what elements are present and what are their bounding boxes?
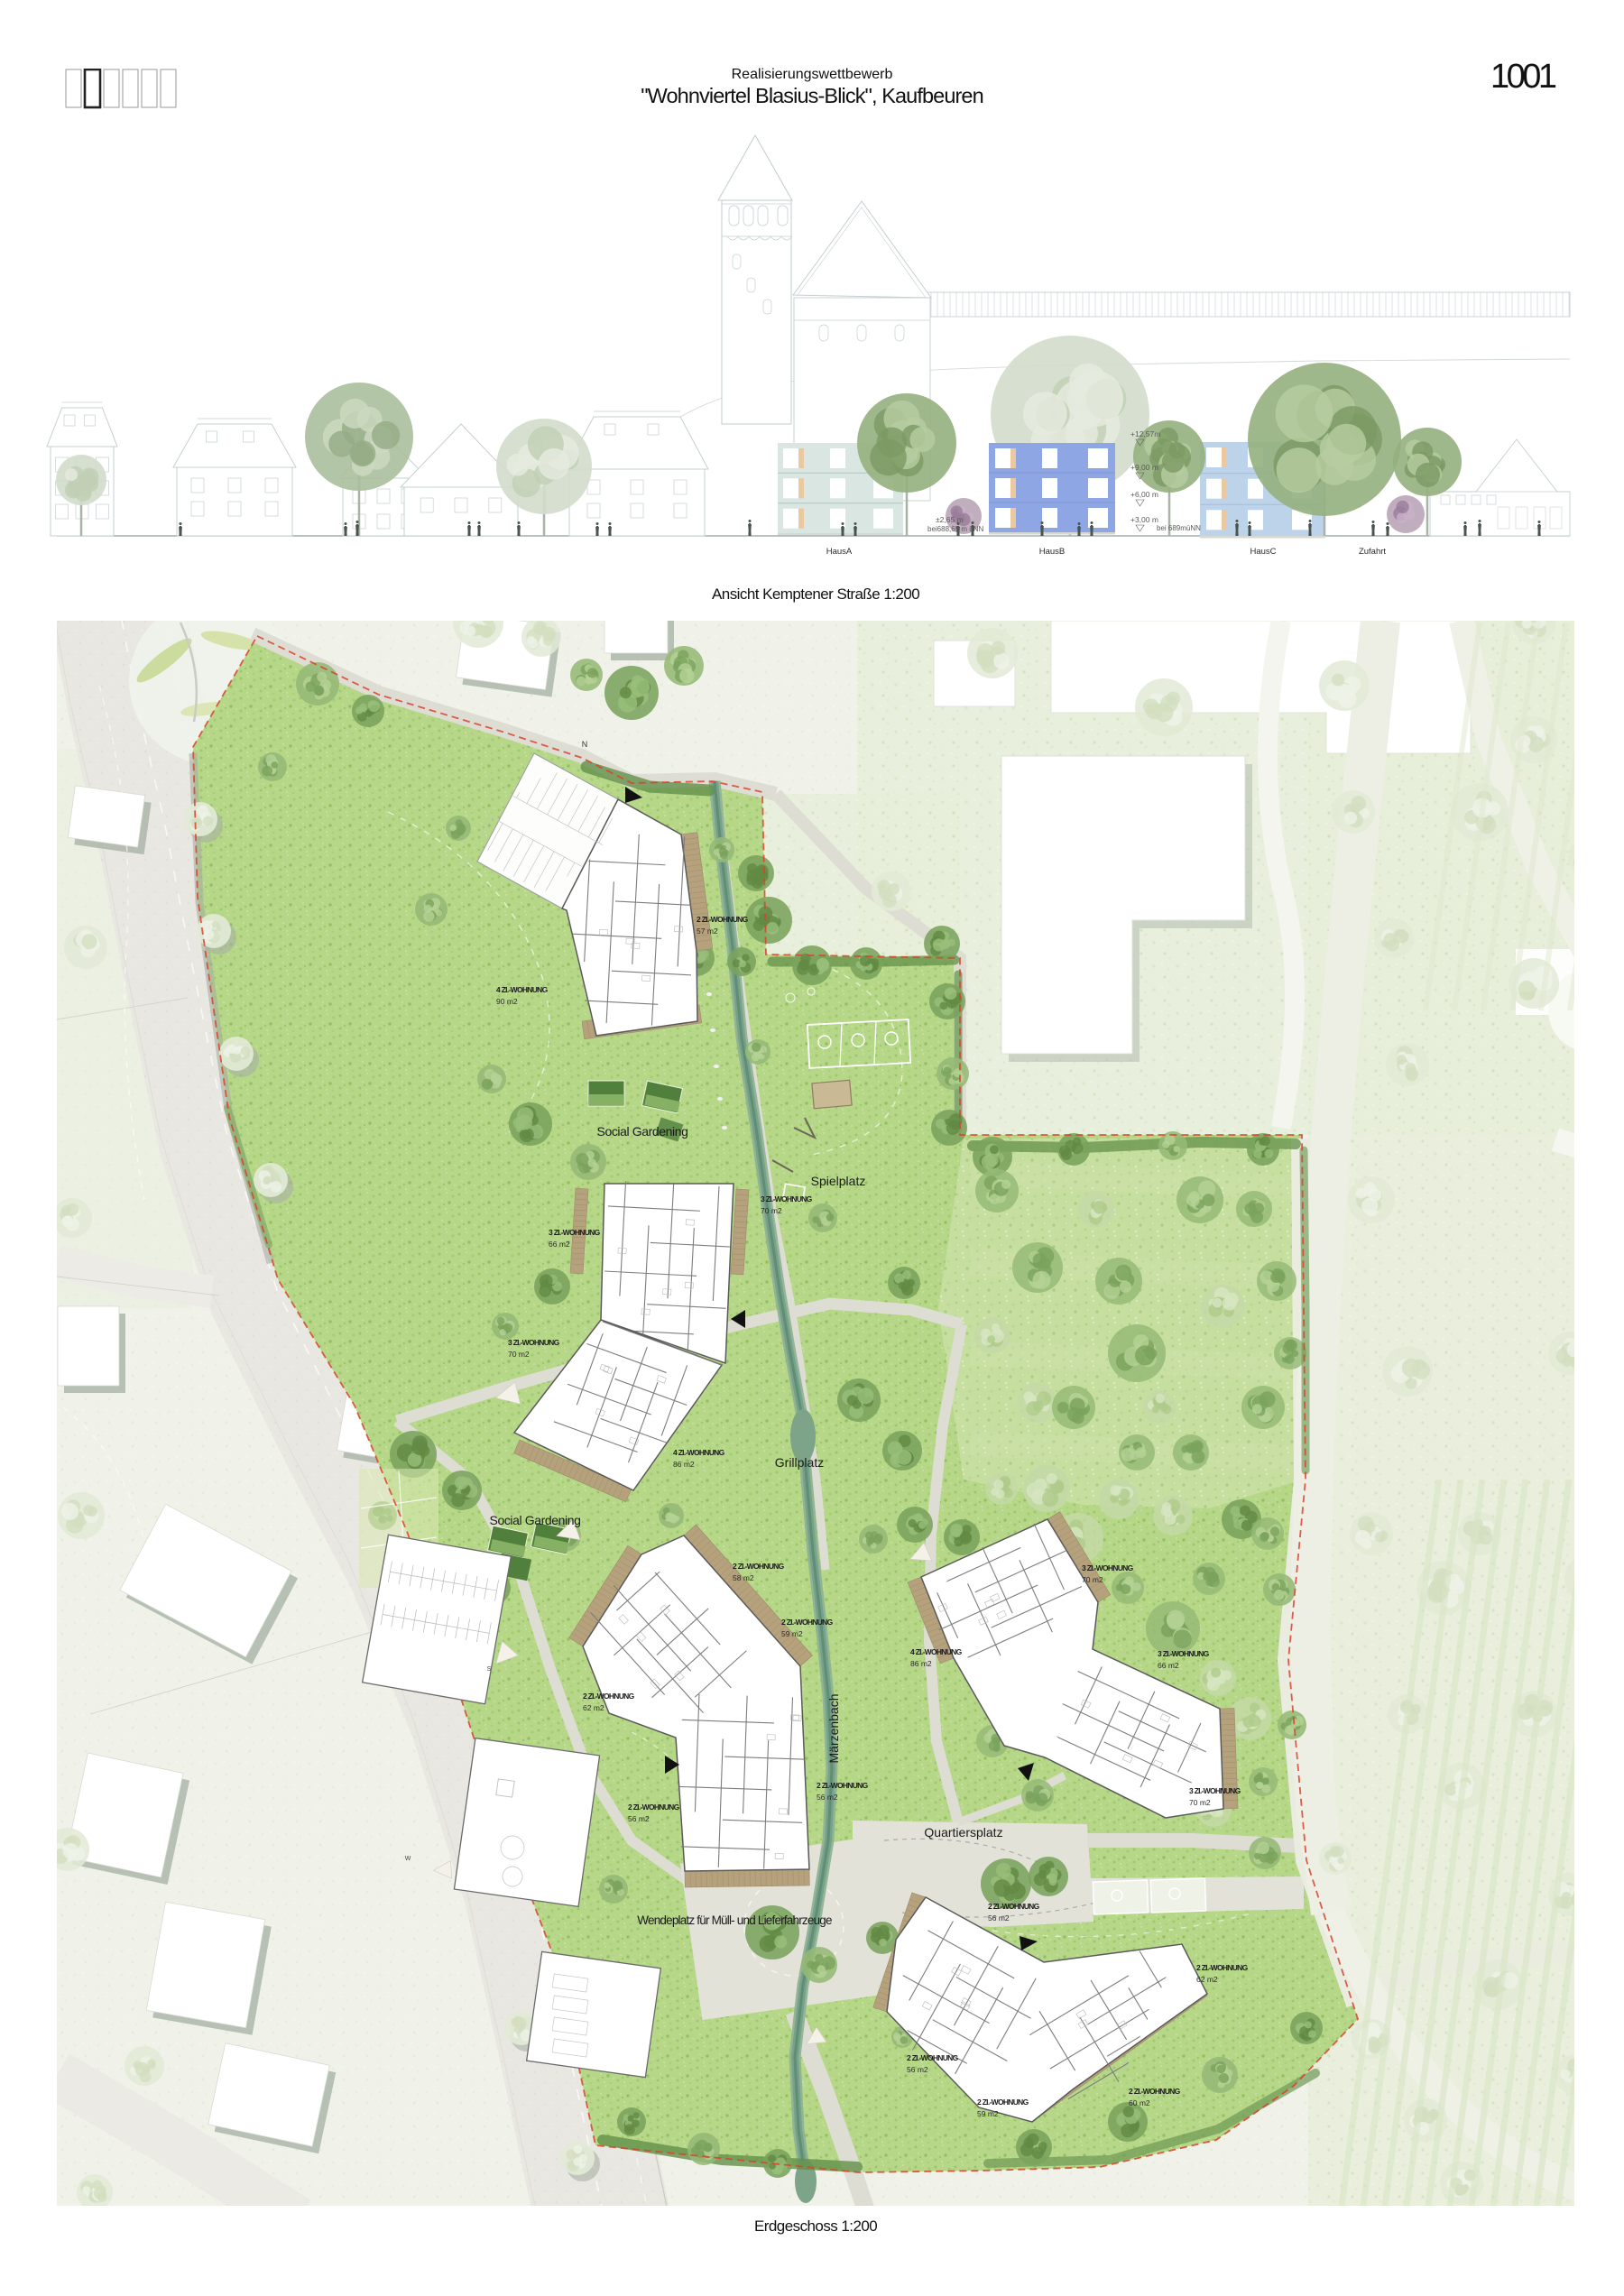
svg-text:W: W [405,1856,411,1862]
svg-text:Märzenbach: Märzenbach [826,1693,841,1763]
svg-text:59 m2: 59 m2 [781,1629,803,1638]
svg-text:2 ZI.-WOHNUNG: 2 ZI.-WOHNUNG [988,1902,1040,1911]
svg-text:56 m2: 56 m2 [988,1913,1010,1923]
svg-text:2 ZI.-WOHNUNG: 2 ZI.-WOHNUNG [628,1803,680,1812]
svg-text:2 ZI.-WOHNUNG: 2 ZI.-WOHNUNG [583,1692,635,1701]
svg-text:2 ZI.-WOHNUNG: 2 ZI.-WOHNUNG [817,1781,869,1790]
svg-text:3 ZI.-WOHNUNG: 3 ZI.-WOHNUNG [1189,1786,1241,1795]
svg-text:2 ZI.-WOHNUNG: 2 ZI.-WOHNUNG [977,2098,1029,2107]
svg-text:2 ZI.-WOHNUNG: 2 ZI.-WOHNUNG [1129,2087,1181,2096]
svg-text:86 m2: 86 m2 [673,1460,695,1469]
svg-text:2 ZI.-WOHNUNG: 2 ZI.-WOHNUNG [697,915,749,924]
svg-text:60 m2: 60 m2 [1129,2098,1150,2107]
svg-text:62 m2: 62 m2 [1196,1975,1218,1984]
svg-text:2 ZI.-WOHNUNG: 2 ZI.-WOHNUNG [907,2053,959,2062]
svg-text:3 ZI.-WOHNUNG: 3 ZI.-WOHNUNG [1158,1649,1210,1658]
svg-text:3 ZI.-WOHNUNG: 3 ZI.-WOHNUNG [1082,1563,1134,1572]
svg-text:Quartiersplatz: Quartiersplatz [924,1825,1002,1840]
svg-text:66 m2: 66 m2 [1158,1661,1179,1670]
svg-text:90 m2: 90 m2 [496,997,518,1006]
svg-text:Grillplatz: Grillplatz [775,1455,824,1470]
svg-text:70 m2: 70 m2 [1082,1575,1103,1584]
svg-text:58 m2: 58 m2 [733,1573,754,1582]
svg-text:57 m2: 57 m2 [697,927,718,936]
svg-text:Social Gardening: Social Gardening [597,1124,688,1139]
svg-text:3 ZI.-WOHNUNG: 3 ZI.-WOHNUNG [761,1194,813,1203]
svg-text:66 m2: 66 m2 [549,1240,570,1249]
svg-text:56 m2: 56 m2 [628,1814,650,1823]
svg-text:2 ZI.-WOHNUNG: 2 ZI.-WOHNUNG [733,1562,785,1571]
svg-text:Spielplatz: Spielplatz [811,1174,866,1188]
svg-text:4 ZI.-WOHNUNG: 4 ZI.-WOHNUNG [496,985,549,994]
svg-text:86 m2: 86 m2 [910,1659,932,1668]
svg-text:70 m2: 70 m2 [761,1206,782,1215]
svg-text:59 m2: 59 m2 [977,2109,999,2118]
svg-text:2 ZI.-WOHNUNG: 2 ZI.-WOHNUNG [781,1618,834,1627]
svg-text:70 m2: 70 m2 [508,1350,530,1359]
svg-text:56 m2: 56 m2 [817,1793,838,1802]
svg-text:70 m2: 70 m2 [1189,1798,1211,1807]
svg-text:S: S [487,1666,492,1673]
svg-text:Social Gardening: Social Gardening [490,1513,581,1527]
svg-text:N: N [582,740,588,749]
svg-text:3 ZI.-WOHNUNG: 3 ZI.-WOHNUNG [549,1228,601,1237]
svg-text:62 m2: 62 m2 [583,1703,604,1712]
svg-text:4 ZI.-WOHNUNG: 4 ZI.-WOHNUNG [910,1647,963,1656]
svg-text:Wendeplatz für Müll- und Liefe: Wendeplatz für Müll- und Lieferfahrzeuge [637,1913,832,1927]
svg-text:3 ZI.-WOHNUNG: 3 ZI.-WOHNUNG [508,1338,560,1347]
svg-text:4 ZI.-WOHNUNG: 4 ZI.-WOHNUNG [673,1448,725,1457]
svg-text:2 ZI.-WOHNUNG: 2 ZI.-WOHNUNG [1196,1963,1249,1972]
svg-text:56 m2: 56 m2 [907,2065,928,2074]
